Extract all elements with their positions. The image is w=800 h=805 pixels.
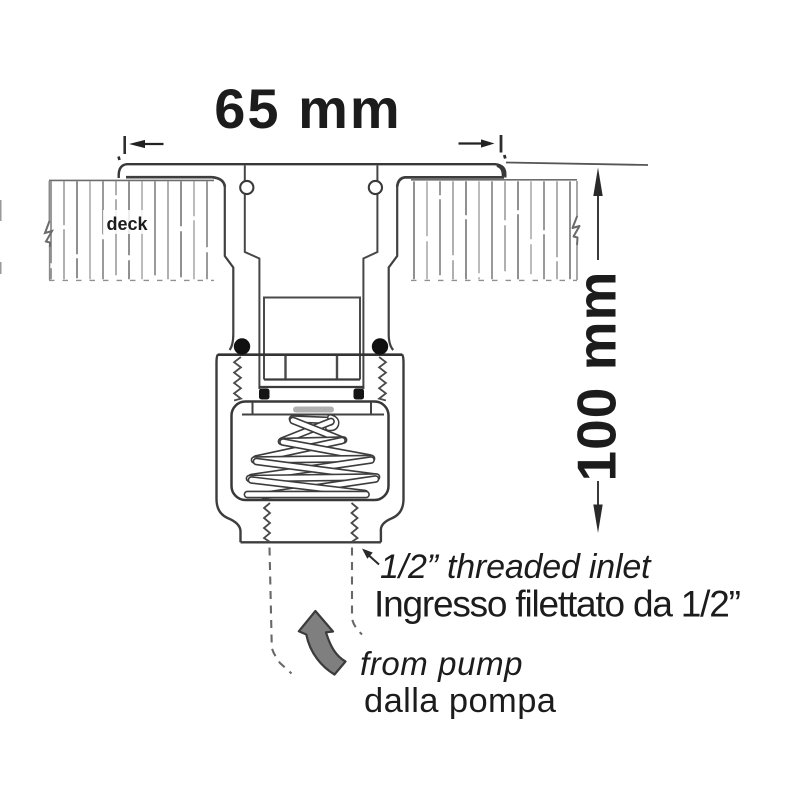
svg-text:100 mm: 100 mm bbox=[566, 271, 628, 482]
svg-text:1/2” threaded inlet: 1/2” threaded inlet bbox=[380, 548, 652, 586]
svg-text:65 mm: 65 mm bbox=[214, 77, 401, 140]
svg-text:dalla pompa: dalla pompa bbox=[364, 682, 557, 720]
svg-text:deck: deck bbox=[106, 214, 148, 234]
svg-text:Ingresso filettato da 1/2”: Ingresso filettato da 1/2” bbox=[374, 584, 740, 625]
svg-text:from pump: from pump bbox=[360, 645, 523, 682]
